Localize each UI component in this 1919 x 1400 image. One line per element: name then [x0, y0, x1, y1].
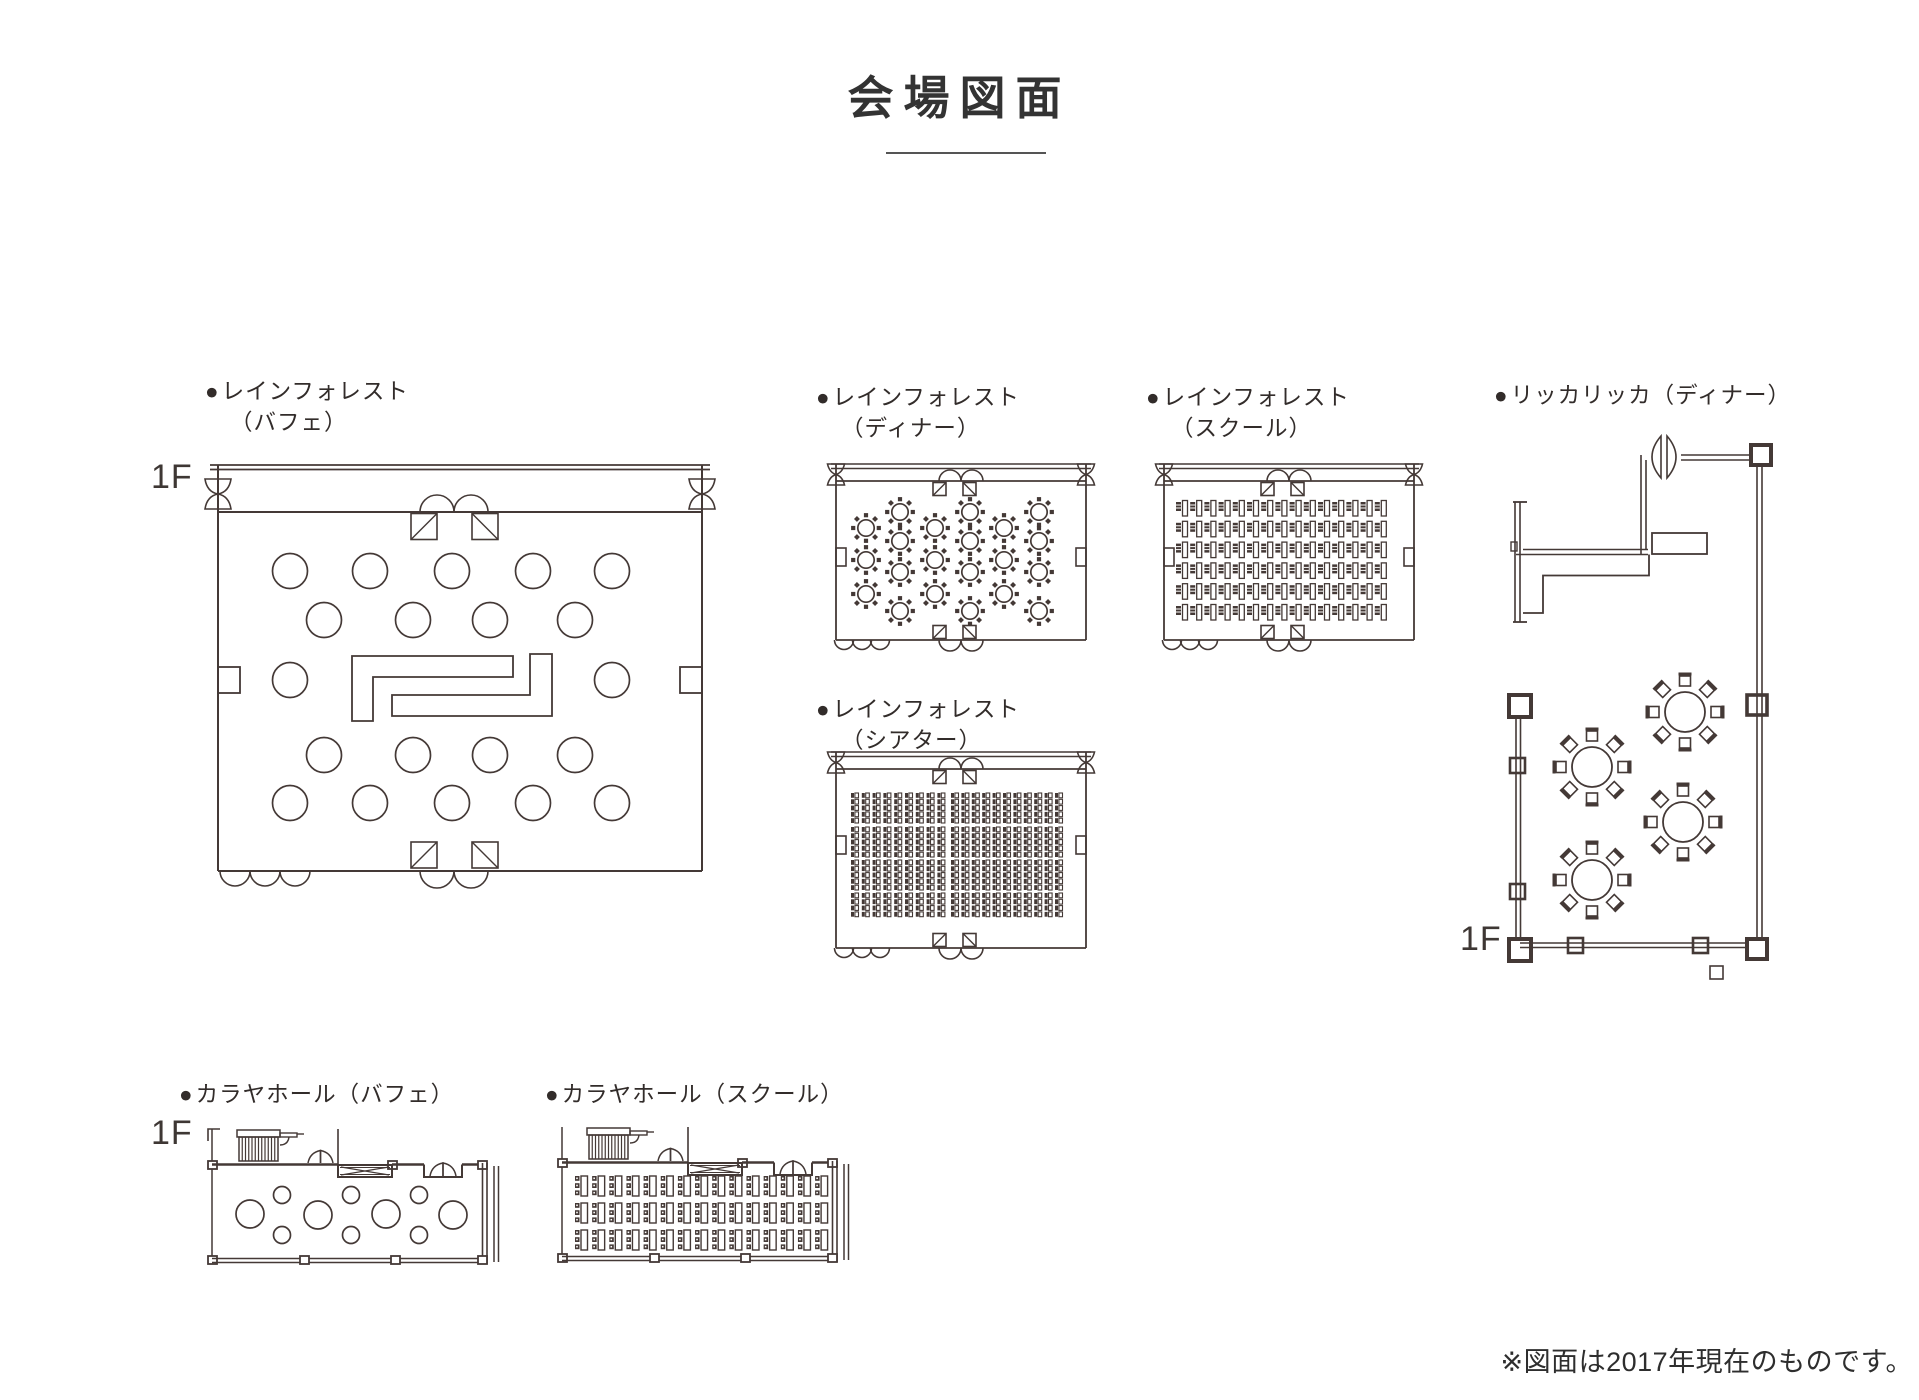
room-walls [210, 465, 710, 871]
bullet-icon: ● [1494, 383, 1509, 408]
buffet-circles [236, 1187, 467, 1244]
bullet-icon: ● [816, 697, 831, 722]
door-icons [205, 479, 715, 888]
label-karaya-buffet: ●カラヤホール（バフェ） [179, 1079, 454, 1110]
entry-arc-icon [430, 1163, 456, 1176]
chair-icon [1677, 848, 1690, 862]
chair-icon [1652, 726, 1671, 745]
theater-seats [851, 793, 1063, 917]
entry-arc-icon [658, 1149, 683, 1162]
plan-name: レインフォレスト [833, 385, 1020, 410]
floor-marker-rainforest-buffet: 1F [151, 458, 193, 497]
label-ricca-ricca-dinner: ●リッカリッカ（ディナー） [1494, 380, 1791, 411]
school-desks [1176, 501, 1386, 621]
round-table-8 [989, 579, 1019, 609]
bullet-icon: ● [179, 1082, 194, 1107]
karaya-buffet-floorplan [195, 1116, 510, 1278]
chair-icon [1699, 679, 1718, 698]
rainforest-theater-floorplan [828, 748, 1094, 970]
door-icons [828, 752, 1095, 959]
stairs-icon [587, 1128, 630, 1159]
chair-icon [1650, 836, 1669, 855]
rainforest-school-floorplan [1156, 460, 1422, 664]
bar-counter [1511, 455, 1707, 622]
round-table-8 [1024, 596, 1054, 626]
escalator-icon [338, 1165, 392, 1177]
door-leaf-icon [280, 1133, 304, 1145]
chair-icon [1559, 847, 1578, 866]
escalator-icon [688, 1163, 742, 1175]
chair-icon [1586, 728, 1599, 742]
rainforest-buffet-floorplan [200, 458, 740, 904]
chair-icon [1606, 894, 1625, 913]
plan-variant: （ディナー） [816, 413, 1020, 444]
round-table-8 [885, 557, 915, 587]
round-table-8 [955, 596, 985, 626]
buffet-counter [352, 654, 552, 721]
round-table-8 [1553, 728, 1632, 807]
chair-icon [1711, 706, 1725, 719]
stairs-icon [237, 1130, 280, 1161]
chair-icon [1606, 734, 1625, 753]
entry-arc-icon [780, 1161, 806, 1174]
karaya-school-floorplan [545, 1114, 860, 1278]
chair-icon [1646, 706, 1660, 719]
plan-name: レインフォレスト [1163, 385, 1350, 410]
chair-icon [1586, 906, 1599, 920]
round-table-8 [955, 526, 985, 556]
door-leaf-icon [630, 1131, 654, 1143]
rainforest-dinner-floorplan [828, 460, 1094, 664]
venue-floorplan-page: 会場図面 ●レインフォレスト （バフェ） ●レインフォレスト （ディナー） ●レ… [0, 0, 1919, 1400]
room-walls [558, 1127, 849, 1262]
round-table-8 [920, 513, 950, 543]
ricca-ricca-dinner-floorplan [1495, 432, 1795, 992]
page-title: 会場図面 [0, 62, 1919, 128]
chair-icon [1644, 816, 1658, 829]
room-walls [1509, 445, 1771, 979]
round-table-8 [989, 513, 1019, 543]
round-table-8 [851, 513, 881, 543]
chair-icon [1618, 761, 1632, 774]
bullet-icon: ● [816, 385, 831, 410]
plan-name: リッカリッカ（ディナー） [1511, 383, 1791, 408]
chair-icon [1697, 836, 1716, 855]
double-door-icon [1652, 436, 1676, 478]
round-table-8 [955, 557, 985, 587]
chair-icon [1559, 781, 1578, 800]
plan-name: カラヤホール（スクール） [562, 1082, 844, 1107]
round-table-8 [851, 579, 881, 609]
round-table-8 [1553, 841, 1632, 920]
round-table-8 [1646, 673, 1725, 752]
round-table-8 [885, 596, 915, 626]
label-rainforest-buffet: ●レインフォレスト （バフェ） [205, 376, 409, 438]
chair-icon [1553, 761, 1567, 774]
chair-icon [1709, 816, 1723, 829]
round-table-8 [885, 497, 915, 527]
label-karaya-school: ●カラヤホール（スクール） [545, 1079, 844, 1110]
chair-icon [1606, 781, 1625, 800]
chair-icon [1679, 738, 1692, 752]
round-table-8 [920, 579, 950, 609]
footnote: ※図面は2017年現在のものです。 [1501, 1340, 1914, 1379]
chair-icon [1679, 673, 1692, 687]
chair-icon [1652, 679, 1671, 698]
chair-icon [1553, 874, 1567, 887]
label-rainforest-dinner: ●レインフォレスト （ディナー） [816, 382, 1020, 444]
dinner-tables [1553, 673, 1725, 920]
floor-marker-karaya: 1F [151, 1114, 193, 1153]
room-walls [1159, 464, 1419, 640]
bullet-icon: ● [545, 1082, 560, 1107]
chair-icon [1677, 783, 1690, 797]
title-underline [886, 152, 1046, 154]
label-rainforest-theater: ●レインフォレスト （シアター） [816, 694, 1020, 756]
chair-icon [1586, 841, 1599, 855]
bullet-icon: ● [1146, 385, 1161, 410]
chair-icon [1606, 847, 1625, 866]
round-table-8 [989, 545, 1019, 575]
plan-name: レインフォレスト [833, 697, 1020, 722]
plan-name: レインフォレスト [222, 379, 409, 404]
round-table-8 [955, 497, 985, 527]
chair-icon [1559, 734, 1578, 753]
chair-icon [1559, 894, 1578, 913]
label-rainforest-school: ●レインフォレスト （スクール） [1146, 382, 1350, 444]
plan-name: カラヤホール（バフェ） [196, 1082, 455, 1107]
round-table-8 [1024, 497, 1054, 527]
school-desks [575, 1176, 828, 1250]
buffet-round-tables [273, 554, 630, 821]
round-table-8 [1644, 783, 1723, 862]
chair-icon [1699, 726, 1718, 745]
dinner-tables [851, 497, 1054, 626]
round-table-8 [1024, 557, 1054, 587]
bullet-icon: ● [205, 379, 220, 404]
round-table-8 [1024, 526, 1054, 556]
chair-icon [1618, 874, 1632, 887]
entry-arc-icon [308, 1151, 333, 1164]
round-table-8 [885, 526, 915, 556]
round-table-8 [851, 545, 881, 575]
round-table-8 [920, 545, 950, 575]
chair-icon [1586, 793, 1599, 807]
chair-icon [1697, 789, 1716, 808]
chair-icon [1650, 789, 1669, 808]
plan-variant: （バフェ） [205, 407, 409, 438]
plan-variant: （スクール） [1146, 413, 1350, 444]
